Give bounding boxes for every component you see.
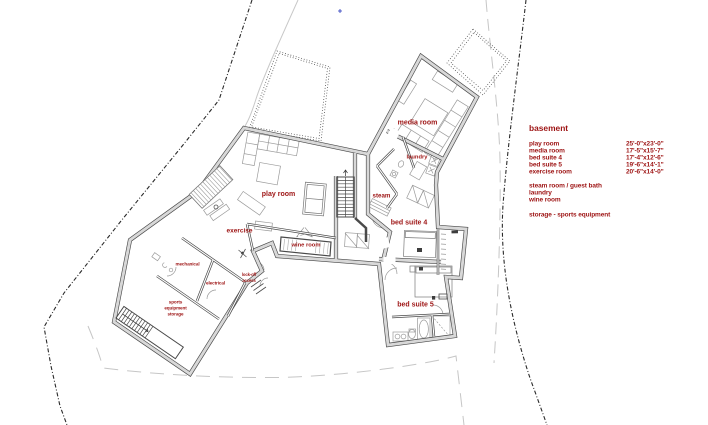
svg-text:17'-5"x15'-7": 17'-5"x15'-7" xyxy=(626,148,664,155)
svg-text:lock-off: lock-off xyxy=(242,272,257,277)
svg-text:25'-0"x23'-0": 25'-0"x23'-0" xyxy=(626,141,664,148)
svg-text:bed suite 4: bed suite 4 xyxy=(529,155,562,162)
svg-text:access: access xyxy=(242,278,256,283)
svg-text:exercise: exercise xyxy=(226,228,252,235)
svg-text:20'-6"x14'-0": 20'-6"x14'-0" xyxy=(626,168,664,175)
svg-text:wine room: wine room xyxy=(291,243,321,249)
svg-text:sports: sports xyxy=(169,300,183,305)
svg-text:bed suite 5: bed suite 5 xyxy=(397,302,434,309)
svg-text:equipment: equipment xyxy=(164,306,187,311)
svg-text:storage: storage xyxy=(168,312,184,317)
svg-text:storage - sports equipment: storage - sports equipment xyxy=(529,211,611,218)
svg-text:laundry: laundry xyxy=(407,155,429,161)
svg-text:basement: basement xyxy=(529,123,568,133)
svg-text:mechanical: mechanical xyxy=(175,262,199,267)
svg-text:steam room / guest bath: steam room / guest bath xyxy=(529,183,602,190)
svg-text:wine room: wine room xyxy=(528,196,561,203)
svg-text:play room: play room xyxy=(262,191,295,198)
svg-text:electrical: electrical xyxy=(206,281,225,286)
svg-text:media room: media room xyxy=(529,148,565,155)
svg-text:play room: play room xyxy=(529,141,559,148)
svg-text:media room: media room xyxy=(398,120,438,127)
svg-text:steam: steam xyxy=(373,193,391,200)
svg-text:exercise room: exercise room xyxy=(529,168,572,175)
svg-text:bed suite 4: bed suite 4 xyxy=(391,220,428,227)
svg-text:17'-4"x12'-6": 17'-4"x12'-6" xyxy=(626,155,664,162)
